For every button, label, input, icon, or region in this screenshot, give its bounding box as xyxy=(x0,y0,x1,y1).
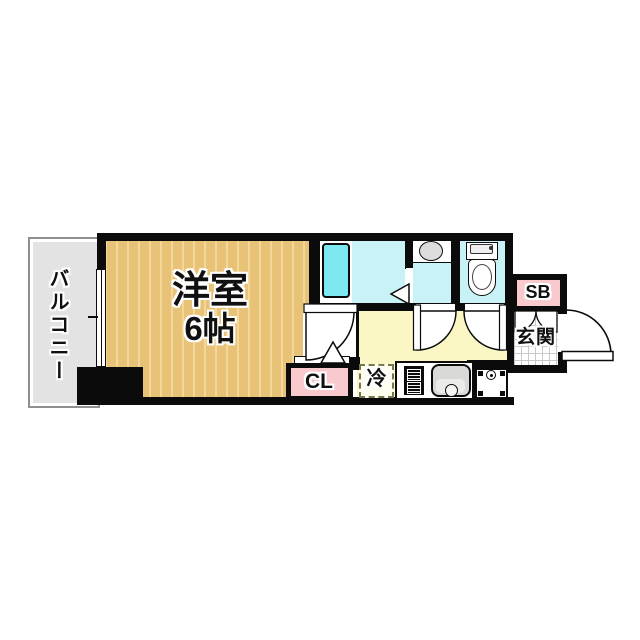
wall-washroom-toilet xyxy=(451,233,460,311)
toilet-doorway xyxy=(465,304,504,311)
toilet-tank xyxy=(466,242,498,260)
fridge-label: 冷 xyxy=(359,369,394,390)
door-jamb-line xyxy=(356,303,359,363)
washing-machine-pan xyxy=(475,368,508,399)
washbasin xyxy=(419,241,443,261)
bathroom-doorway xyxy=(406,268,413,303)
closet-label: CL xyxy=(296,371,342,393)
entrance-door-leaf xyxy=(562,352,613,361)
kitchen-sink xyxy=(431,364,471,397)
wall-entrance-bottom xyxy=(508,365,567,373)
floor-plan: バルコニー CL 冷 xyxy=(0,0,640,640)
bathtub xyxy=(322,243,350,298)
balcony-label: バルコニー xyxy=(46,250,67,400)
wall-bath-washroom xyxy=(405,241,413,269)
stove xyxy=(404,366,424,395)
wall-room-bath xyxy=(309,241,320,311)
washer-faucet-icon xyxy=(486,370,496,380)
toilet-bowl xyxy=(468,259,496,296)
bathroom-floor xyxy=(352,241,405,303)
window-tick xyxy=(88,316,98,318)
room-name: 洋室 xyxy=(149,272,271,312)
entrance-label: 玄関 xyxy=(512,328,560,348)
window xyxy=(96,269,106,367)
shoebox-label: SB xyxy=(514,283,562,302)
washroom-doorway xyxy=(416,304,455,311)
room-size: 6帖 xyxy=(149,312,271,347)
wall-left-upper xyxy=(97,233,106,271)
room-label: 洋室 6帖 xyxy=(149,272,271,347)
entrance-door-arc xyxy=(566,310,611,355)
washroom-floor xyxy=(413,263,451,303)
